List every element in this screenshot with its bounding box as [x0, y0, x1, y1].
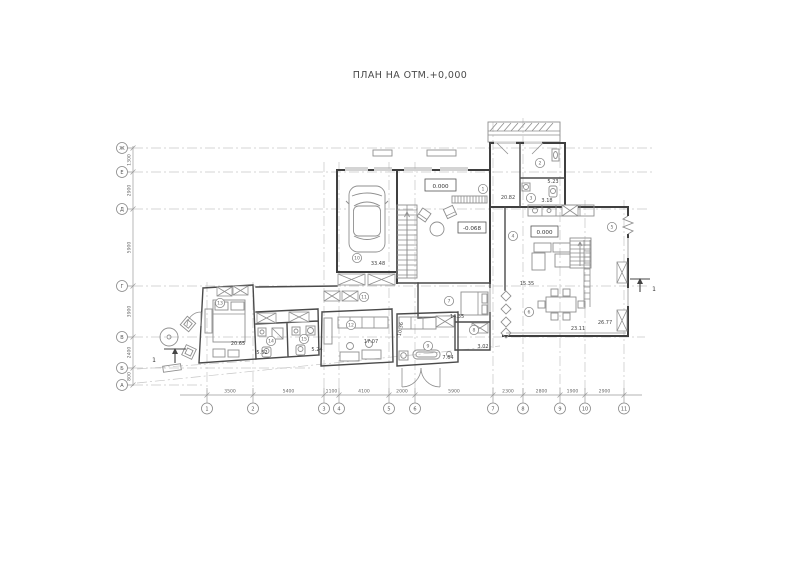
- office-furniture: [324, 317, 388, 361]
- grid-col-bubble-6: 6: [413, 406, 416, 412]
- grid-row-bubble-v: В: [120, 335, 124, 341]
- elevation-label-kitchen: 0.000: [536, 230, 552, 236]
- bedroom-13-furniture: [205, 300, 245, 357]
- area-lounge-zone: 15.35: [520, 281, 534, 287]
- area-room-8: 3.02: [477, 344, 488, 350]
- grid-bubbles-bottom: 1 2 3 4 5 6 7 8 9 10 11: [202, 403, 630, 414]
- room-bubble-8: 8: [473, 328, 476, 334]
- area-room-7: 14.35: [450, 314, 464, 320]
- dim-row-zh-e: 1300: [127, 154, 133, 166]
- section-mark-label-right: 1: [652, 286, 656, 293]
- area-room-2: 5.23: [547, 179, 558, 185]
- room-bubble-15: 15: [301, 337, 307, 343]
- grid-col-bubble-10: 10: [582, 406, 588, 412]
- elevation-label-entry: 0.000: [432, 184, 448, 190]
- grid-row-bubble-a: А: [120, 383, 124, 389]
- dim-row-v-b: 2400: [127, 347, 133, 359]
- grid-col-bubble-11: 11: [621, 406, 627, 412]
- sofa-group: [532, 243, 570, 270]
- room-bubble-5: 5: [611, 225, 614, 231]
- grid-col-bubble-5: 5: [387, 406, 390, 412]
- area-room-10: 33.48: [371, 261, 385, 267]
- bedroom-7-furniture: [461, 292, 488, 315]
- area-room-9: 7.64: [442, 355, 453, 361]
- room-bubble-1: 1: [482, 187, 485, 193]
- grid-col-bubble-4: 4: [337, 406, 340, 412]
- floor-plan-svg: ПЛАН НА ОТМ.+0,000 1 2 3 4 5 6 7 8 9 10 …: [0, 0, 800, 566]
- area-room-5: 26.77: [598, 320, 612, 326]
- grid-col-bubble-1: 1: [205, 406, 208, 412]
- walls: [199, 143, 628, 366]
- area-room-12: 17.07: [364, 339, 378, 345]
- dim-row-g-v: 3900: [127, 306, 133, 318]
- area-room-15: 5.24: [311, 347, 322, 353]
- roof-deck: [488, 122, 560, 142]
- room-bubble-2: 2: [539, 161, 542, 167]
- grid-col-bubble-9: 9: [558, 406, 561, 412]
- area-room-11: 10.36: [397, 322, 405, 337]
- dim-row-e-d: 2900: [127, 185, 133, 197]
- room-bubble-7: 7: [448, 299, 451, 305]
- room-bubble-4: 4: [512, 234, 515, 240]
- dim-col-4-5: 4100: [358, 389, 370, 395]
- dining-set: [538, 289, 585, 320]
- dimension-texts-left: 1300 2900 5900 3900 2400 800: [127, 154, 133, 381]
- dim-col-7-8: 2300: [502, 389, 514, 395]
- grid-col-bubble-8: 8: [521, 406, 524, 412]
- drawing-sheet: ПЛАН НА ОТМ.+0,000 1 2 3 4 5 6 7 8 9 10 …: [0, 0, 800, 566]
- area-room-14: 5.52: [256, 350, 267, 356]
- room-bubble-13: 13: [217, 301, 223, 307]
- car: [346, 186, 388, 252]
- skylights: [373, 150, 456, 156]
- mullion-diamonds: [501, 291, 511, 338]
- area-room-13: 20.65: [231, 341, 245, 347]
- dim-col-2-3: 5400: [283, 389, 295, 395]
- area-room-6: 23.11: [571, 326, 585, 332]
- grid-row-bubble-d: Д: [120, 207, 124, 213]
- dim-col-6-7: 5900: [448, 389, 460, 395]
- grid-col-bubble-3: 3: [322, 406, 325, 412]
- room-bubble-11: 11: [361, 295, 367, 301]
- elevation-label-lounge: -0.068: [463, 226, 481, 232]
- dim-col-8-9: 2800: [536, 389, 548, 395]
- room-bubble-3: 3: [530, 196, 533, 202]
- area-room-1: 20.82: [501, 195, 515, 201]
- grid-row-bubble-zh: Ж: [119, 146, 125, 152]
- room-bubble-9: 9: [427, 344, 430, 350]
- dim-col-3-4: 1100: [326, 389, 338, 395]
- grid-row-bubble-g: Г: [120, 284, 123, 290]
- dim-col-1-2: 3500: [224, 389, 236, 395]
- grid-row-bubble-e: Е: [120, 170, 123, 176]
- dim-col-5-6: 2000: [396, 389, 408, 395]
- dim-col-10-11: 2900: [599, 389, 611, 395]
- stair-central: [397, 205, 417, 278]
- room-bubble-6: 6: [528, 310, 531, 316]
- section-mark-label-left: 1: [152, 357, 156, 364]
- grid-col-bubble-2: 2: [251, 406, 254, 412]
- room-bubble-14: 14: [268, 339, 274, 345]
- room-bubble-10: 10: [354, 256, 360, 262]
- dim-row-d-g: 5900: [127, 242, 133, 254]
- terrace-furniture: [160, 316, 196, 372]
- grid-bubbles-left: Ж Е Д Г В Б А: [117, 143, 128, 391]
- bathroom-fixtures: [258, 149, 559, 357]
- area-room-3: 3.18: [541, 198, 552, 204]
- dimension-texts-bottom: 3500 5400 1100 4100 2000 5900 2300 2800 …: [224, 389, 610, 395]
- dim-row-b-a: 800: [127, 372, 133, 381]
- fireplace: [623, 216, 633, 234]
- page-title: ПЛАН НА ОТМ.+0,000: [353, 70, 467, 81]
- dim-col-9-10: 1900: [567, 389, 579, 395]
- grid-row-bubble-b: Б: [120, 366, 124, 372]
- grid-col-bubble-7: 7: [491, 406, 494, 412]
- room-bubble-12: 12: [348, 323, 354, 329]
